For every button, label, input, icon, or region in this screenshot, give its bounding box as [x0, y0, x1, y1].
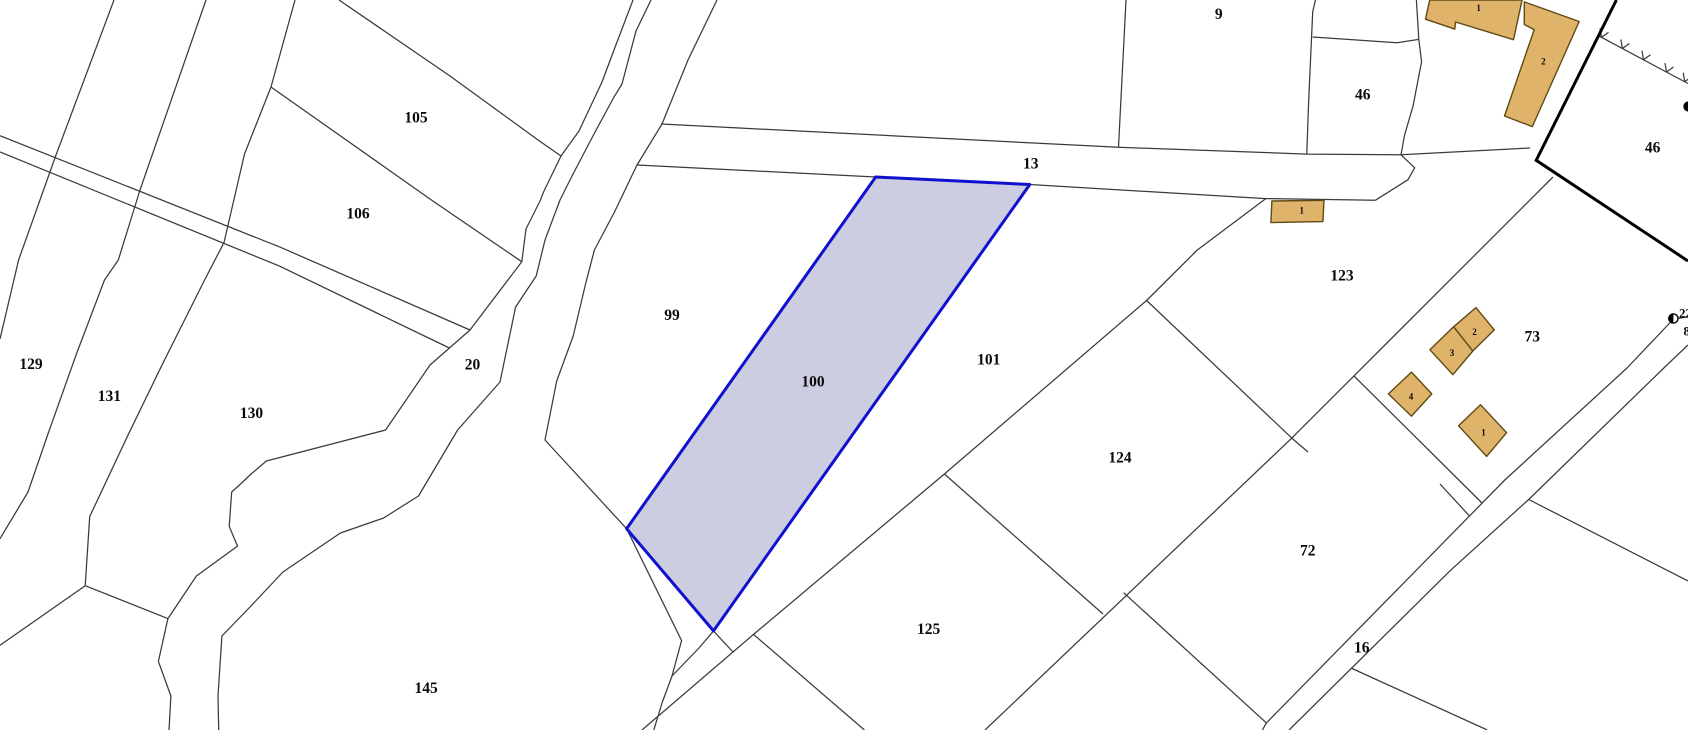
svg-text:106: 106	[346, 205, 370, 222]
svg-text:145: 145	[414, 680, 438, 697]
svg-text:1: 1	[1299, 206, 1304, 216]
svg-text:22: 22	[1679, 306, 1688, 321]
svg-text:100: 100	[801, 374, 825, 391]
svg-text:130: 130	[240, 405, 264, 422]
svg-text:4: 4	[1409, 392, 1414, 402]
svg-text:2: 2	[1541, 57, 1546, 67]
svg-text:131: 131	[98, 388, 121, 405]
svg-text:8: 8	[1684, 324, 1688, 339]
svg-text:72: 72	[1300, 542, 1316, 559]
svg-text:101: 101	[977, 351, 1000, 368]
svg-text:123: 123	[1330, 267, 1354, 284]
svg-text:2: 2	[1472, 327, 1477, 337]
svg-text:1: 1	[1481, 428, 1486, 438]
svg-text:9: 9	[1215, 6, 1223, 23]
svg-text:13: 13	[1023, 156, 1039, 173]
svg-text:1: 1	[1476, 3, 1481, 13]
svg-text:99: 99	[664, 307, 680, 324]
svg-text:3: 3	[1450, 348, 1455, 358]
svg-text:124: 124	[1108, 449, 1132, 466]
svg-text:125: 125	[917, 621, 941, 638]
svg-text:16: 16	[1354, 639, 1370, 656]
svg-text:129: 129	[19, 356, 43, 373]
svg-text:46: 46	[1355, 86, 1371, 103]
svg-text:73: 73	[1525, 329, 1541, 346]
svg-text:20: 20	[465, 357, 481, 374]
svg-text:46: 46	[1645, 139, 1661, 156]
svg-text:105: 105	[404, 109, 428, 126]
